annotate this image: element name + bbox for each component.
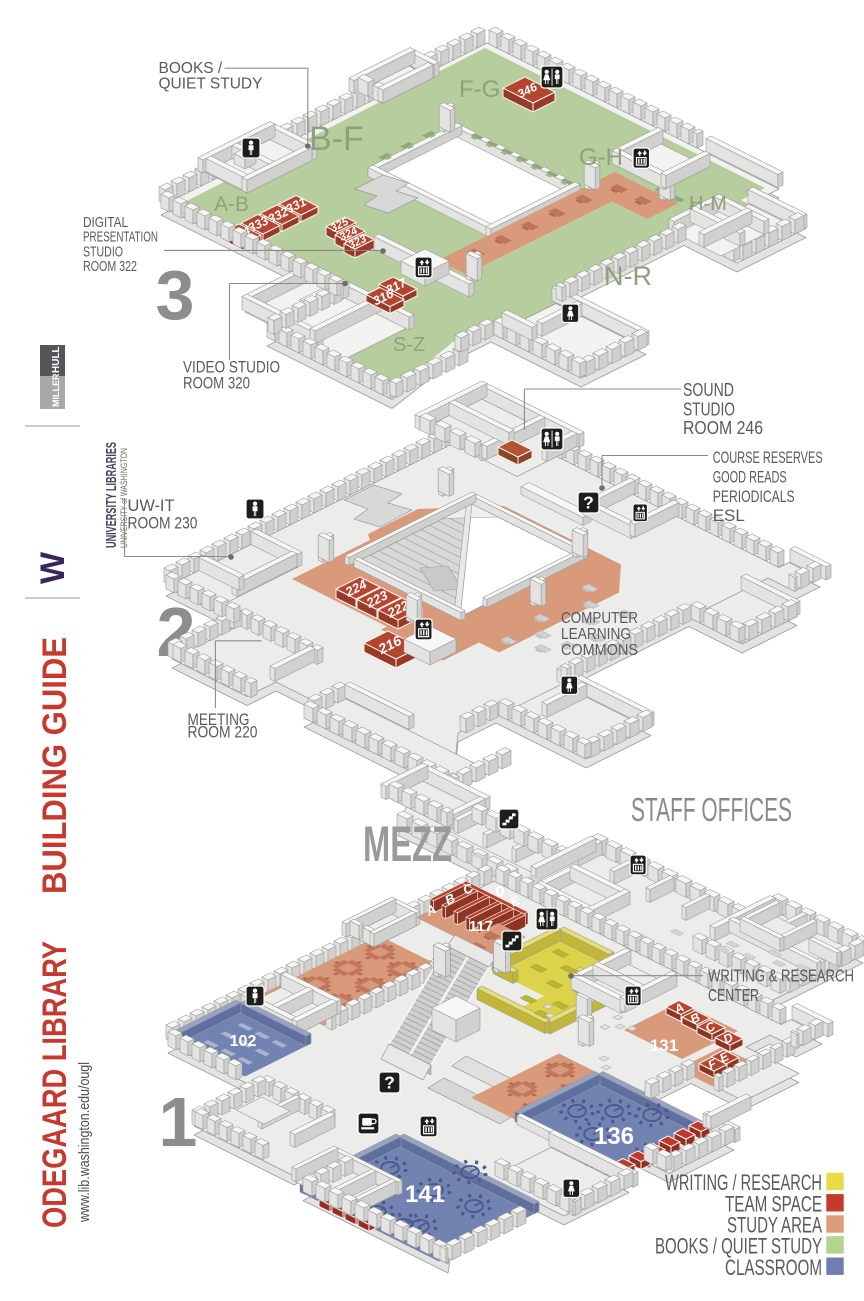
- svg-text:G-H: G-H: [579, 144, 623, 171]
- svg-text:W: W: [34, 551, 72, 584]
- svg-text:ROOM 320: ROOM 320: [183, 374, 250, 392]
- svg-text:102: 102: [230, 1033, 257, 1050]
- svg-text:?: ?: [384, 1073, 395, 1093]
- svg-text:ODEGAARD LIBRARY: ODEGAARD LIBRARY: [36, 941, 74, 1228]
- svg-text:ROOM 230: ROOM 230: [128, 514, 198, 533]
- svg-text:GOOD READS: GOOD READS: [713, 468, 787, 487]
- svg-text:141: 141: [405, 1181, 445, 1208]
- svg-text:136: 136: [594, 1123, 634, 1150]
- svg-text:HULL: HULL: [51, 346, 62, 373]
- svg-text:STAFF OFFICES: STAFF OFFICES: [631, 791, 792, 828]
- svg-text:COMPUTER: COMPUTER: [561, 610, 638, 627]
- svg-text:1: 1: [159, 1083, 198, 1161]
- svg-text:UW-IT: UW-IT: [128, 496, 175, 515]
- svg-text:www.lib.washington.edu/ougl: www.lib.washington.edu/ougl: [76, 1062, 93, 1223]
- svg-text:BUILDING GUIDE: BUILDING GUIDE: [36, 637, 74, 894]
- svg-text:LEARNING: LEARNING: [561, 626, 631, 643]
- svg-text:STUDIO: STUDIO: [683, 400, 735, 420]
- svg-text:117: 117: [469, 918, 493, 935]
- svg-text:B-F: B-F: [309, 120, 364, 158]
- svg-text:PERIODICALS: PERIODICALS: [713, 487, 795, 506]
- svg-text:BOOKS /: BOOKS /: [159, 60, 223, 77]
- svg-text:ROOM 322: ROOM 322: [83, 258, 137, 275]
- svg-text:MILLER: MILLER: [51, 373, 61, 407]
- svg-text:COMMONS: COMMONS: [561, 642, 638, 659]
- svg-text:MEZZ: MEZZ: [363, 816, 452, 872]
- svg-text:131: 131: [650, 1036, 678, 1055]
- svg-text:CLASSROOM: CLASSROOM: [725, 1255, 822, 1280]
- svg-text:H-M: H-M: [689, 193, 727, 215]
- svg-text:ROOM 246: ROOM 246: [683, 418, 763, 438]
- svg-text:COURSE RESERVES: COURSE RESERVES: [713, 448, 823, 467]
- svg-text:CENTER: CENTER: [708, 985, 759, 1005]
- svg-text:SOUND: SOUND: [683, 380, 734, 400]
- svg-text:ROOM 220: ROOM 220: [188, 723, 258, 742]
- svg-text:S-Z: S-Z: [393, 334, 425, 356]
- svg-text:QUIET STUDY: QUIET STUDY: [159, 76, 263, 93]
- svg-text:UNIVERSITY LIBRARIES: UNIVERSITY LIBRARIES: [103, 442, 120, 548]
- svg-text:WRITING & RESEARCH: WRITING & RESEARCH: [708, 966, 854, 986]
- svg-text:?: ?: [583, 493, 594, 513]
- svg-text:F-G: F-G: [459, 76, 500, 103]
- svg-text:N-R: N-R: [604, 261, 652, 291]
- svg-text:3: 3: [156, 256, 195, 334]
- svg-text:ESL: ESL: [713, 506, 745, 525]
- svg-text:A-B: A-B: [214, 193, 249, 216]
